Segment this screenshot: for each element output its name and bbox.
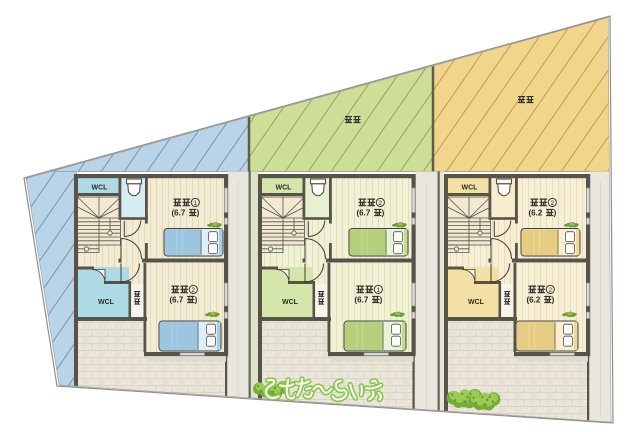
svg-text:WCL: WCL <box>92 185 109 192</box>
svg-text:): ) <box>552 296 555 305</box>
svg-text:(6.2: (6.2 <box>527 296 541 305</box>
svg-text:): ) <box>197 209 200 218</box>
svg-text:WCL: WCL <box>468 299 485 306</box>
svg-text:2: 2 <box>379 200 383 207</box>
svg-text:(6.7: (6.7 <box>357 209 371 218</box>
svg-text:(6.7: (6.7 <box>170 296 184 305</box>
svg-text:(6.7: (6.7 <box>172 209 186 218</box>
svg-text:): ) <box>382 209 385 218</box>
svg-text:2: 2 <box>192 287 196 294</box>
svg-text:(6.7: (6.7 <box>355 296 369 305</box>
svg-text:(6.2: (6.2 <box>529 209 543 218</box>
svg-text:WCL: WCL <box>462 185 479 192</box>
svg-text:1: 1 <box>194 200 198 207</box>
svg-text:1: 1 <box>377 287 381 294</box>
svg-text:): ) <box>380 296 383 305</box>
svg-text:2: 2 <box>551 200 555 207</box>
svg-text:WCL: WCL <box>276 185 293 192</box>
svg-text:WCL: WCL <box>98 299 115 306</box>
svg-text:): ) <box>195 296 198 305</box>
svg-text:): ) <box>554 209 557 218</box>
svg-text:2: 2 <box>549 287 553 294</box>
svg-text:WCL: WCL <box>282 299 299 306</box>
